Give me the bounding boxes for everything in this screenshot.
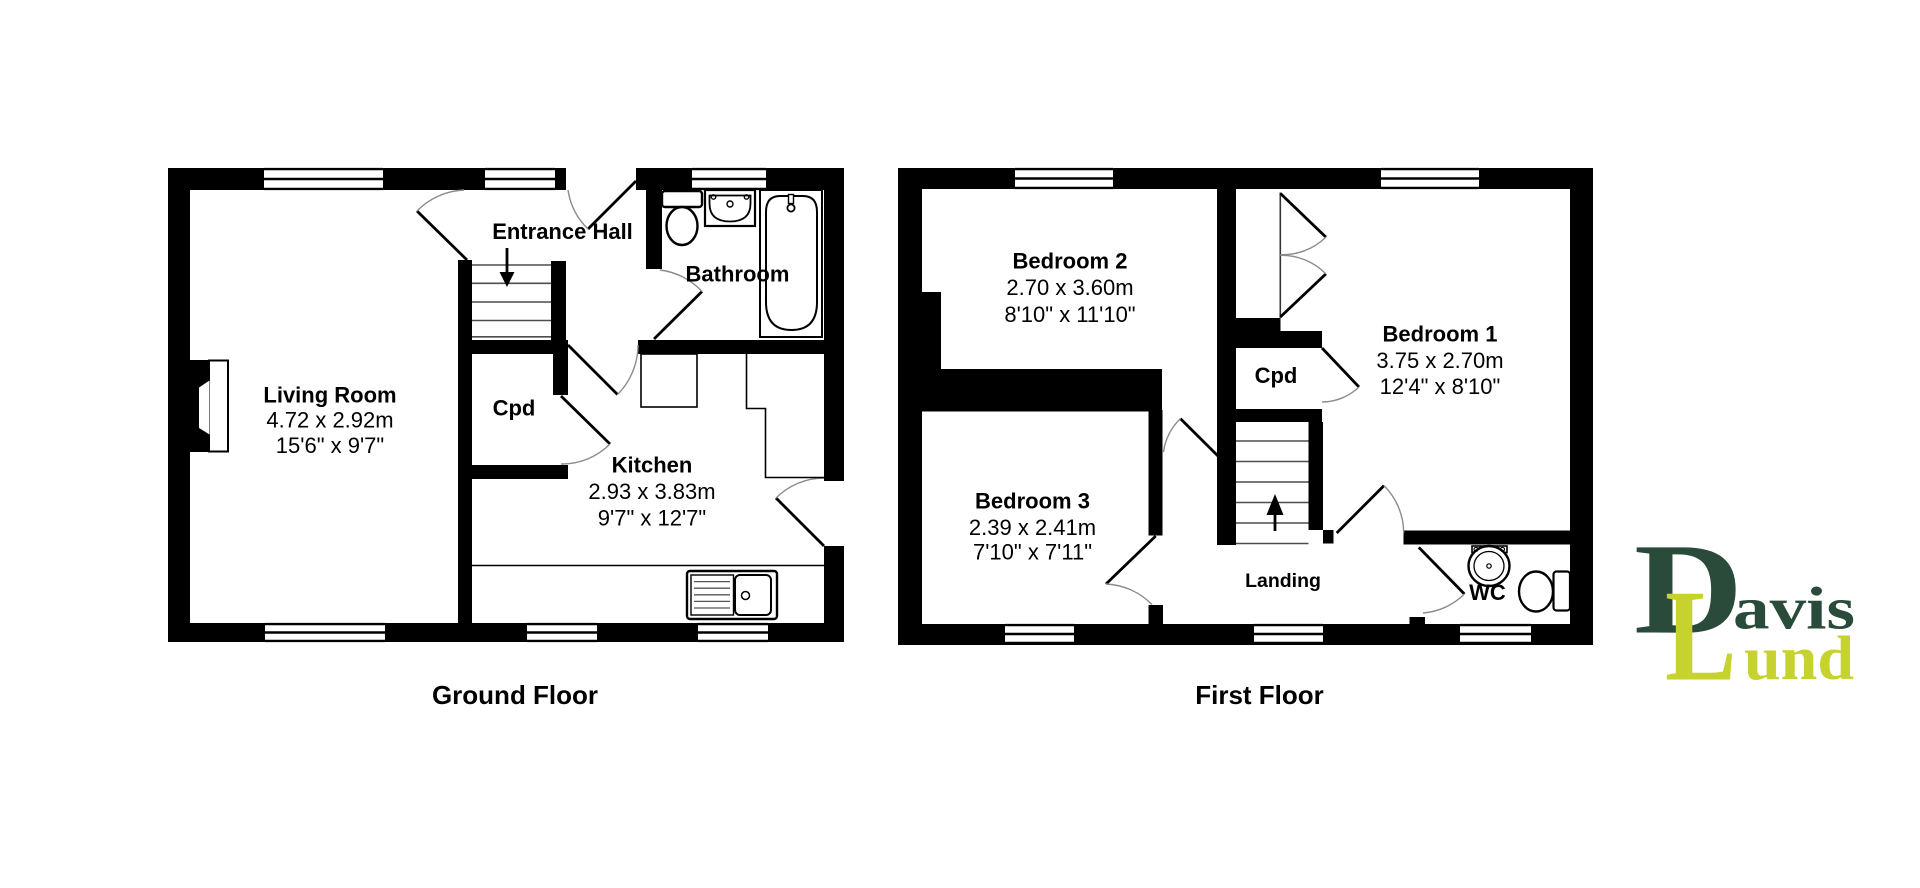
svg-text:Bathroom: Bathroom bbox=[686, 262, 790, 287]
svg-text:7'10" x 7'11": 7'10" x 7'11" bbox=[973, 540, 1092, 565]
svg-text:Ground Floor: Ground Floor bbox=[432, 680, 598, 710]
svg-text:Cpd: Cpd bbox=[1255, 363, 1298, 388]
svg-text:2.39 x 2.41m: 2.39 x 2.41m bbox=[969, 515, 1096, 540]
svg-text:12'4" x 8'10": 12'4" x 8'10" bbox=[1380, 374, 1501, 399]
svg-text:9'7" x 12'7": 9'7" x 12'7" bbox=[598, 506, 706, 531]
svg-text:3.75 x 2.70m: 3.75 x 2.70m bbox=[1376, 348, 1503, 373]
svg-text:First Floor: First Floor bbox=[1195, 680, 1324, 710]
svg-text:4.72 x 2.92m: 4.72 x 2.92m bbox=[266, 408, 393, 433]
svg-text:Entrance Hall: Entrance Hall bbox=[492, 219, 633, 244]
svg-text:Cpd: Cpd bbox=[493, 396, 536, 421]
svg-text:Living Room: Living Room bbox=[263, 383, 396, 408]
svg-text:L: L bbox=[1665, 564, 1737, 709]
svg-text:Landing: Landing bbox=[1245, 570, 1321, 592]
svg-text:8'10" x 11'10": 8'10" x 11'10" bbox=[1004, 302, 1135, 327]
svg-text:2.70 x 3.60m: 2.70 x 3.60m bbox=[1006, 275, 1133, 300]
svg-text:15'6" x 9'7": 15'6" x 9'7" bbox=[276, 433, 384, 458]
svg-text:2.93 x 3.83m: 2.93 x 3.83m bbox=[588, 479, 715, 504]
svg-text:und: und bbox=[1744, 625, 1854, 693]
svg-text:Bedroom 2: Bedroom 2 bbox=[1013, 249, 1128, 274]
svg-text:Bedroom 1: Bedroom 1 bbox=[1383, 322, 1498, 347]
svg-text:Kitchen: Kitchen bbox=[612, 453, 693, 478]
svg-text:WC: WC bbox=[1469, 580, 1506, 605]
svg-text:Bedroom 3: Bedroom 3 bbox=[975, 489, 1090, 514]
